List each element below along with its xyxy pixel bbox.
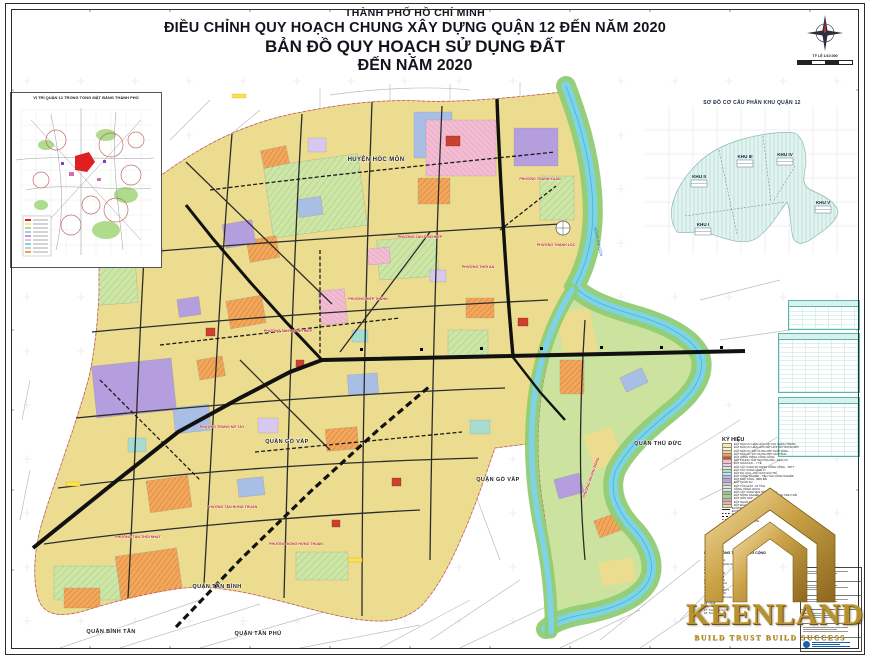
title-city: THÀNH PHỐ HỒ CHÍ MINH bbox=[150, 7, 680, 19]
legend-swatch bbox=[722, 509, 730, 510]
label-huyen-hoc-mon: HUYỆN HÓC MÔN bbox=[348, 155, 405, 163]
zone-label-khu4: KHU IV bbox=[777, 152, 794, 157]
label-quan-thu-duc: QUẬN THỦ ĐỨC bbox=[634, 440, 682, 447]
ward-label: PHƯỜNG TÂN THỚI HIỆP bbox=[398, 234, 443, 239]
drawing-title-block bbox=[800, 567, 862, 652]
legend-swatch bbox=[722, 519, 730, 520]
inset-city-location: VỊ TRÍ QUẬN 12 TRONG TỔNG MẶT BẰNG THÀNH… bbox=[10, 92, 162, 268]
label-quan-tan-binh: QUẬN TÂN BÌNH bbox=[192, 582, 241, 590]
title-map: BẢN ĐỒ QUY HOẠCH SỬ DỤNG ĐẤT bbox=[150, 37, 680, 57]
legend-swatch bbox=[722, 513, 730, 514]
label-quan-tan-phu: QUẬN TÂN PHÚ bbox=[235, 630, 282, 637]
scale-bar bbox=[797, 60, 853, 65]
legend-items: ĐẤT DÂN CƯ HIỆN HỮU CẢI TẠO CHỈNH TRANGĐ… bbox=[722, 444, 860, 527]
label-quan-go-vap-west: QUẬN GÒ VẤP bbox=[265, 437, 309, 445]
legend-swatch bbox=[722, 525, 730, 526]
institute-seal-icon bbox=[803, 641, 810, 648]
ward-label: PHƯỜNG TÂN THỚI NHẤT bbox=[115, 534, 161, 539]
ward-label: PHƯỜNG TRUNG MỸ TÂY bbox=[200, 424, 245, 429]
label-quan-go-vap-south: QUẬN GÒ VẤP bbox=[476, 475, 520, 483]
legend-swatch bbox=[722, 522, 730, 523]
scale-label: TỶ LỆ 1/10.000 bbox=[794, 54, 856, 58]
label-quan-binh-tan: QUẬN BÌNH TÂN bbox=[86, 627, 135, 635]
title-block-seal bbox=[801, 638, 861, 651]
inset-zoning-structure: SƠ ĐỒ CƠ CẤU PHÂN KHU QUẬN 12 KHU I KHU … bbox=[645, 98, 859, 258]
ward-label: PHƯỜNG THỚI AN bbox=[462, 264, 495, 269]
north-arrow-block: TỶ LỆ 1/10.000 bbox=[794, 13, 856, 65]
title-plan: ĐIỀU CHỈNH QUY HOẠCH CHUNG XÂY DỰNG QUẬN… bbox=[150, 20, 680, 36]
title-year: ĐẾN NĂM 2020 bbox=[150, 57, 680, 75]
zone-label-khu2: KHU II bbox=[692, 174, 706, 179]
inset-right-map: KHU I KHU II KHU III KHU IV KHU V bbox=[645, 106, 859, 254]
inset-right-title: SƠ ĐỒ CƠ CẤU PHÂN KHU QUẬN 12 bbox=[645, 98, 859, 106]
map-title-block: THÀNH PHỐ HỒ CHÍ MINH ĐIỀU CHỈNH QUY HOẠ… bbox=[150, 7, 680, 75]
ward-label: PHƯỜNG TÂN HƯNG THUẬN bbox=[207, 504, 258, 509]
legend-row: RANH KHU Ở bbox=[722, 524, 860, 527]
ward-label: PHƯỜNG TÂN CHÁNH HIỆP bbox=[264, 328, 313, 333]
legend: KÝ HIỆU ĐẤT DÂN CƯ HIỆN HỮU CẢI TẠO CHỈN… bbox=[722, 437, 860, 527]
zone-label-khu5: KHU V bbox=[816, 200, 831, 205]
inset-left-map bbox=[11, 100, 159, 264]
legend-swatch bbox=[722, 504, 732, 508]
ward-label: PHƯỜNG THẠNH LỘC bbox=[537, 242, 576, 247]
zone-label-khu1: KHU I bbox=[697, 222, 710, 227]
map-sheet: PHƯỜNG THẠNH XUÂN PHƯỜNG THẠNH LỘC PHƯỜN… bbox=[0, 0, 870, 658]
ward-label: PHƯỜNG ĐÔNG HƯNG THUẬN bbox=[269, 541, 323, 546]
ward-label: PHƯỜNG THẠNH XUÂN bbox=[519, 176, 561, 181]
inset-left-title: VỊ TRÍ QUẬN 12 TRONG TỔNG MẶT BẰNG THÀNH… bbox=[11, 93, 161, 100]
legend-label: RANH KHU Ở bbox=[732, 524, 749, 527]
data-table-1 bbox=[778, 333, 860, 393]
ward-label: PHƯỜNG HIỆP THÀNH bbox=[348, 296, 388, 301]
legend-swatch bbox=[722, 516, 730, 517]
data-table-small bbox=[788, 300, 860, 330]
compass-rose-icon bbox=[805, 13, 845, 53]
zone-label-khu3: KHU III bbox=[737, 154, 752, 159]
